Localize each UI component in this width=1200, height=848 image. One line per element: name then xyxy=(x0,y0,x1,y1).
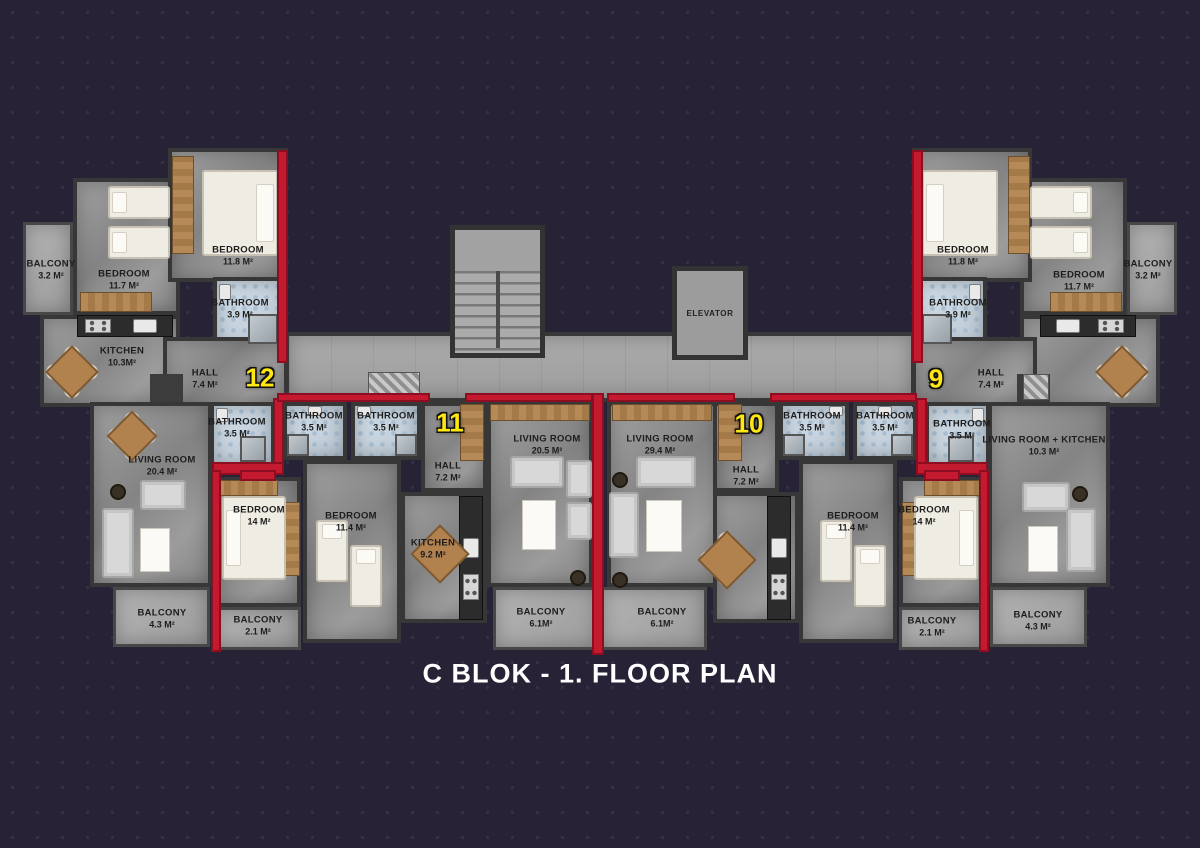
wood-entry-floor xyxy=(490,404,590,421)
red-wall xyxy=(592,393,604,655)
coffee-table xyxy=(140,528,170,572)
red-wall xyxy=(607,393,735,402)
room-label-bedroom-11-8-left: BEDROOM11.8 M² xyxy=(212,244,264,267)
room-label-bathroom-3-5-apt10-a: BATHROOM3.5 M² xyxy=(783,410,841,433)
room-label-bedroom-14-right: BEDROOM14 M² xyxy=(898,504,950,527)
side-table xyxy=(612,572,628,588)
stove-icon xyxy=(463,574,479,600)
red-wall xyxy=(273,398,284,468)
apartment-number-10: 10 xyxy=(735,409,764,440)
side-table xyxy=(1072,486,1088,502)
single-bed xyxy=(350,545,382,607)
sofa xyxy=(636,456,696,488)
room-label-hall-7-4-right: HALL7.4 M² xyxy=(978,367,1005,390)
red-wall xyxy=(912,150,923,363)
wood-floor-strip xyxy=(1050,292,1122,312)
room-label-bathroom-3-5-apt11-a: BATHROOM3.5 M² xyxy=(285,410,343,433)
sofa xyxy=(1066,508,1096,572)
sink-icon xyxy=(133,319,157,333)
room-label-bathroom-3-5-apt12: BATHROOM3.5 M² xyxy=(208,416,266,439)
room-label-hall-7-4-left: HALL7.4 M² xyxy=(192,367,219,390)
floor-plan: ELEVATOR xyxy=(0,0,1200,848)
shower xyxy=(240,436,266,462)
kitchen-counter xyxy=(767,496,791,620)
shower xyxy=(891,434,913,456)
shower xyxy=(287,434,309,456)
sink-icon xyxy=(1056,319,1080,333)
sofa xyxy=(102,508,134,578)
room-label-bedroom-11-8-right: BEDROOM11.8 M² xyxy=(937,244,989,267)
single-bed xyxy=(1030,226,1092,259)
apartment-number-9: 9 xyxy=(929,364,943,395)
apartment-number-12: 12 xyxy=(246,363,275,394)
room-label-bedroom-11-7-right: BEDROOM11.7 M² xyxy=(1053,269,1105,292)
stair-rail xyxy=(496,271,500,349)
room-label-living-20-4-left: LIVING ROOM20.4 M² xyxy=(128,454,195,477)
room-label-balcony-4-3-left: BALCONY4.3 M² xyxy=(137,607,186,630)
room-label-balcony-2-1-left: BALCONY2.1 M² xyxy=(233,614,282,637)
stove-icon xyxy=(771,574,787,600)
sofa xyxy=(609,492,639,558)
sofa xyxy=(140,480,186,510)
room-label-bathroom-3-5-apt10-b: BATHROOM3.5 M² xyxy=(856,410,914,433)
room-label-living-29-4: LIVING ROOM29.4 M² xyxy=(626,433,693,456)
armchair xyxy=(566,502,592,540)
armchair xyxy=(566,460,592,498)
coffee-table xyxy=(522,500,556,550)
red-wall xyxy=(277,393,430,402)
coffee-table xyxy=(646,500,682,552)
single-bed xyxy=(1030,186,1092,219)
red-wall xyxy=(211,470,221,652)
apartment-number-11: 11 xyxy=(436,408,464,439)
room-label-balcony-6-1-left: BALCONY6.1M² xyxy=(516,606,565,629)
doormat-striped xyxy=(1023,374,1049,400)
coffee-table xyxy=(1028,526,1058,572)
single-bed xyxy=(854,545,886,607)
sofa xyxy=(1022,482,1070,512)
elevator-label: ELEVATOR xyxy=(686,309,733,318)
wood-entry-floor xyxy=(612,404,712,421)
stove-icon xyxy=(85,319,111,333)
red-wall xyxy=(277,150,288,363)
sofa xyxy=(510,456,564,488)
red-wall xyxy=(916,398,927,468)
room-label-bedroom-11-4-left: BEDROOM11.4 M² xyxy=(325,510,377,533)
shower xyxy=(395,434,417,456)
wood-floor-strip xyxy=(216,480,278,496)
wood-floor-strip xyxy=(80,292,152,312)
staircase xyxy=(450,225,545,358)
room-label-living-20-5: LIVING ROOM20.5 M² xyxy=(513,433,580,456)
room-label-bedroom-11-7-left: BEDROOM11.7 M² xyxy=(98,268,150,291)
side-table xyxy=(110,484,126,500)
room-label-bathroom-3-5-apt11-b: BATHROOM3.5 M² xyxy=(357,410,415,433)
red-wall xyxy=(240,470,276,481)
side-table xyxy=(570,570,586,586)
room-label-balcony-6-1-right: BALCONY6.1M² xyxy=(637,606,686,629)
room-label-hall-7-2-right: HALL7.2 M² xyxy=(733,464,760,487)
red-wall xyxy=(979,470,989,652)
elevator: ELEVATOR xyxy=(672,266,748,360)
room-label-bathroom-3-9-left: BATHROOM3.9 M² xyxy=(211,297,269,320)
sink-icon xyxy=(771,538,787,558)
room-label-kitchen-10-3-left: KITCHEN10.3M² xyxy=(100,345,144,368)
room-label-bedroom-14-left: BEDROOM14 M² xyxy=(233,504,285,527)
room-label-bedroom-11-4-right: BEDROOM11.4 M² xyxy=(827,510,879,533)
room-label-balcony-2-1-right: BALCONY2.1 M² xyxy=(907,615,956,638)
red-wall xyxy=(924,470,960,481)
red-wall xyxy=(770,393,917,402)
double-bed xyxy=(202,170,278,256)
room-label-balcony-4-3-right: BALCONY4.3 M² xyxy=(1013,609,1062,632)
side-table xyxy=(612,472,628,488)
room-label-hall-7-2-left: HALL7.2 M² xyxy=(435,460,462,483)
room-label-balcony-3-2-right: BALCONY3.2 M² xyxy=(1123,258,1172,281)
room-label-balcony-3-2-left: BALCONY3.2 M² xyxy=(26,258,75,281)
room-label-kitchen-9-2-left: KITCHEN9.2 M² xyxy=(411,537,455,560)
room-label-living-kitchen-right: LIVING ROOM + KITCHEN10.3 M² xyxy=(982,434,1105,457)
wardrobe-wood xyxy=(172,156,194,254)
stove-icon xyxy=(1098,319,1124,333)
wood-floor-strip xyxy=(284,502,300,576)
double-bed xyxy=(922,170,998,256)
shower xyxy=(783,434,805,456)
single-bed xyxy=(108,226,170,259)
doormat xyxy=(150,374,183,402)
red-wall xyxy=(465,393,593,402)
single-bed xyxy=(108,186,170,219)
room-label-bathroom-3-9-right: BATHROOM3.9 M² xyxy=(929,297,987,320)
wardrobe-wood xyxy=(1008,156,1030,254)
plan-title: C BLOK - 1. FLOOR PLAN xyxy=(423,659,778,690)
wood-floor-strip xyxy=(924,480,986,496)
